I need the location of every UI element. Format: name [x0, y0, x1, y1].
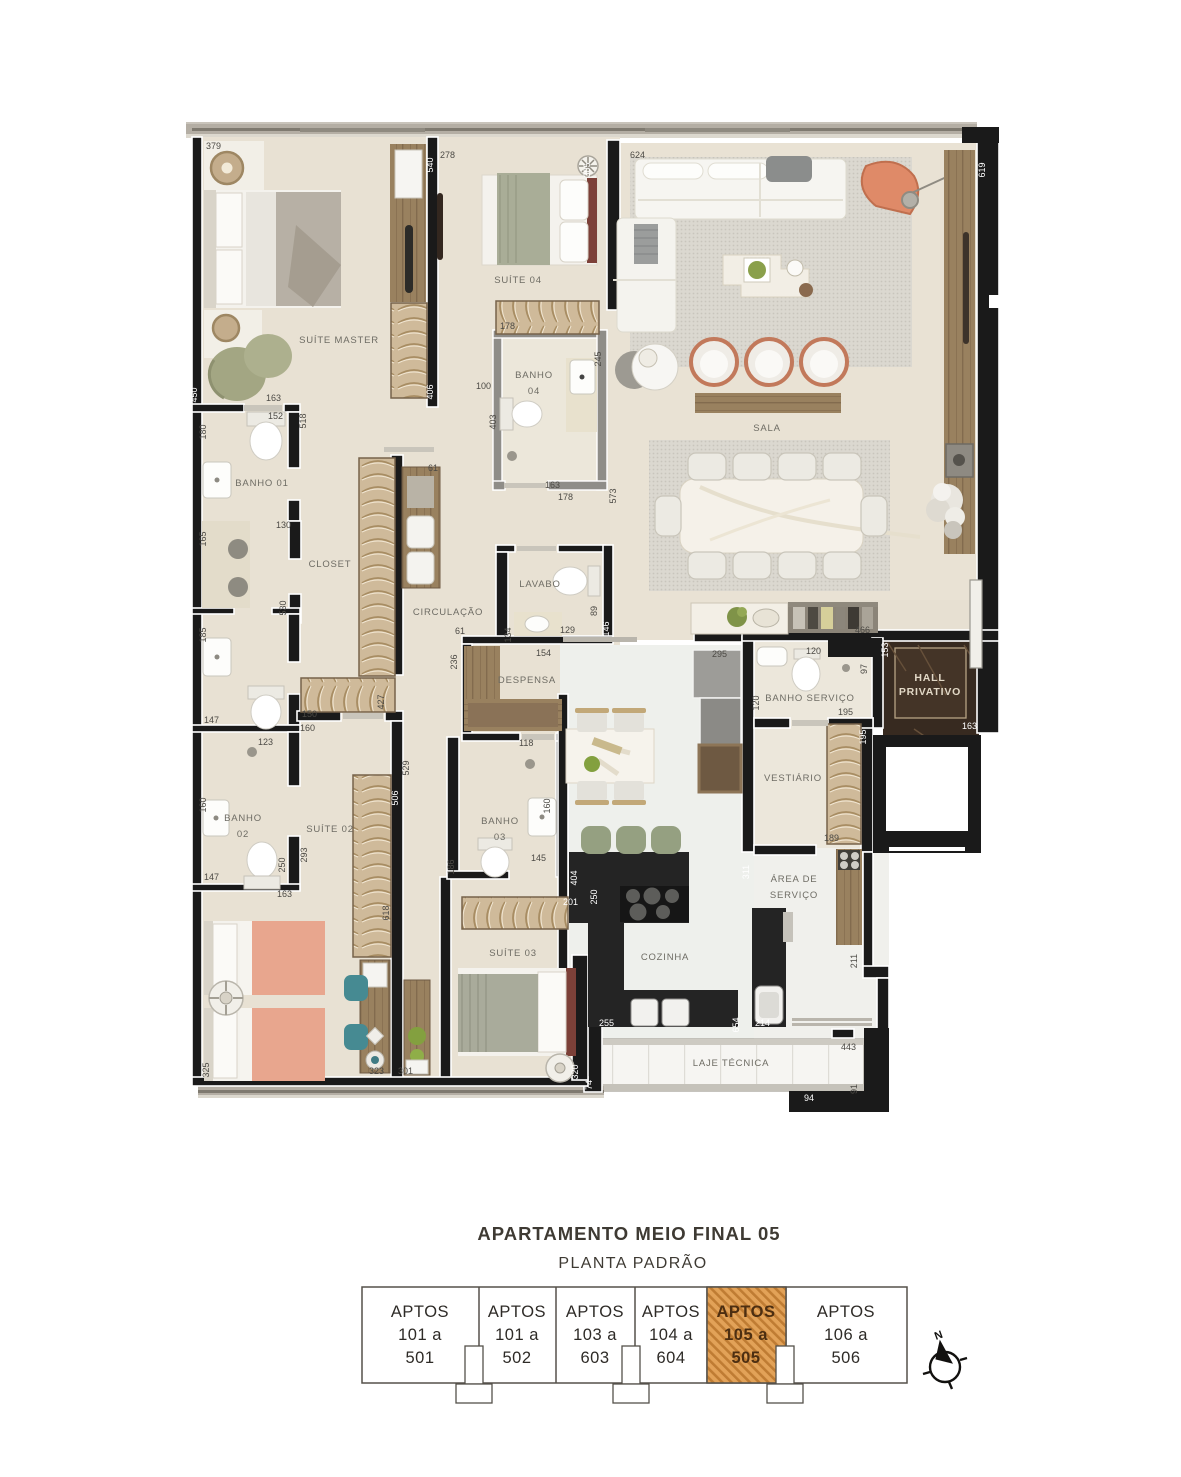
- svg-text:BANHO: BANHO: [481, 816, 519, 827]
- svg-text:404: 404: [569, 870, 579, 885]
- svg-text:406: 406: [425, 384, 435, 399]
- svg-text:SALA: SALA: [753, 423, 781, 434]
- svg-text:518: 518: [298, 413, 308, 428]
- svg-text:97: 97: [859, 664, 869, 674]
- svg-text:SUÍTE 04: SUÍTE 04: [494, 275, 542, 286]
- svg-text:195: 195: [858, 729, 868, 744]
- svg-text:ÁREA DE: ÁREA DE: [771, 874, 818, 885]
- svg-text:160: 160: [198, 797, 208, 812]
- svg-text:HALL: HALL: [914, 672, 945, 684]
- svg-text:186: 186: [446, 859, 456, 874]
- svg-text:61: 61: [428, 463, 438, 473]
- svg-text:160: 160: [542, 798, 552, 813]
- svg-text:325: 325: [201, 1062, 211, 1077]
- svg-text:505: 505: [731, 1349, 760, 1367]
- svg-text:105 a: 105 a: [724, 1326, 768, 1344]
- svg-text:APTOS: APTOS: [566, 1303, 624, 1321]
- svg-text:120: 120: [806, 646, 821, 656]
- svg-text:123: 123: [258, 737, 273, 747]
- svg-text:245: 245: [593, 351, 603, 366]
- svg-text:120: 120: [751, 695, 761, 710]
- svg-text:89: 89: [589, 606, 599, 616]
- svg-text:104 a: 104 a: [649, 1326, 693, 1344]
- svg-text:320: 320: [570, 1064, 580, 1079]
- svg-text:305: 305: [582, 162, 592, 177]
- svg-text:178: 178: [500, 321, 515, 331]
- svg-text:163: 163: [266, 393, 281, 403]
- svg-text:130: 130: [276, 520, 291, 530]
- svg-text:147: 147: [204, 872, 219, 882]
- svg-text:SUÍTE MASTER: SUÍTE MASTER: [299, 335, 379, 346]
- svg-text:201: 201: [563, 897, 578, 907]
- svg-text:CLOSET: CLOSET: [309, 559, 352, 570]
- svg-text:SERVIÇO: SERVIÇO: [770, 890, 818, 901]
- svg-text:654: 654: [731, 1017, 741, 1032]
- svg-text:530: 530: [278, 600, 288, 615]
- svg-text:103 a: 103 a: [573, 1326, 617, 1344]
- svg-text:VESTIÁRIO: VESTIÁRIO: [764, 773, 822, 784]
- svg-text:154: 154: [536, 648, 551, 658]
- svg-text:101 a: 101 a: [398, 1326, 442, 1344]
- svg-text:COZINHA: COZINHA: [641, 952, 689, 963]
- svg-text:04: 04: [528, 386, 540, 397]
- svg-text:214: 214: [755, 1018, 770, 1028]
- svg-text:506: 506: [390, 790, 400, 805]
- svg-text:178: 178: [558, 492, 573, 502]
- svg-text:153: 153: [880, 642, 890, 657]
- svg-text:466: 466: [855, 625, 870, 635]
- svg-text:604: 604: [656, 1349, 685, 1367]
- svg-text:152: 152: [268, 411, 283, 421]
- svg-text:61: 61: [455, 626, 465, 636]
- svg-text:379: 379: [206, 141, 221, 151]
- svg-text:618: 618: [381, 905, 391, 920]
- svg-text:APTOS: APTOS: [642, 1303, 700, 1321]
- svg-text:PLANTA PADRÃO: PLANTA PADRÃO: [558, 1252, 707, 1272]
- svg-text:501: 501: [405, 1349, 434, 1367]
- svg-text:118: 118: [519, 738, 533, 748]
- svg-text:APTOS: APTOS: [391, 1303, 449, 1321]
- svg-text:427: 427: [376, 694, 386, 709]
- svg-text:301: 301: [398, 1066, 413, 1076]
- svg-text:624: 624: [630, 150, 645, 160]
- svg-text:101 a: 101 a: [495, 1326, 539, 1344]
- svg-text:403: 403: [488, 414, 498, 429]
- svg-text:02: 02: [237, 829, 249, 840]
- svg-text:195: 195: [838, 707, 853, 717]
- svg-text:211: 211: [849, 954, 859, 968]
- svg-text:255: 255: [599, 1018, 614, 1028]
- svg-text:573: 573: [608, 488, 618, 503]
- svg-text:134: 134: [503, 627, 513, 642]
- svg-text:163: 163: [962, 721, 977, 731]
- svg-text:LAJE TÉCNICA: LAJE TÉCNICA: [693, 1058, 769, 1069]
- svg-text:295: 295: [712, 649, 727, 659]
- svg-text:165: 165: [198, 531, 208, 546]
- svg-text:94: 94: [804, 1093, 814, 1103]
- svg-text:189: 189: [824, 833, 839, 843]
- svg-text:SUÍTE 03: SUÍTE 03: [489, 948, 537, 959]
- svg-text:BANHO 01: BANHO 01: [235, 478, 288, 489]
- svg-text:619: 619: [977, 162, 987, 177]
- svg-text:278: 278: [440, 150, 455, 160]
- svg-text:450: 450: [189, 387, 199, 402]
- svg-text:APTOS: APTOS: [488, 1303, 546, 1321]
- svg-text:146: 146: [601, 621, 611, 636]
- svg-text:323: 323: [369, 1066, 384, 1076]
- svg-text:443: 443: [841, 1042, 856, 1052]
- svg-text:180: 180: [198, 424, 208, 439]
- svg-text:CIRCULAÇÃO: CIRCULAÇÃO: [413, 607, 483, 618]
- svg-text:147: 147: [204, 715, 219, 725]
- svg-text:APTOS: APTOS: [817, 1303, 875, 1321]
- svg-text:502: 502: [502, 1349, 531, 1367]
- svg-text:185: 185: [198, 627, 208, 642]
- svg-text:236: 236: [449, 654, 459, 669]
- svg-text:SUÍTE 02: SUÍTE 02: [306, 824, 354, 835]
- svg-text:91: 91: [849, 1084, 859, 1094]
- svg-text:603: 603: [580, 1349, 609, 1367]
- svg-text:150: 150: [302, 709, 317, 719]
- svg-text:145: 145: [531, 853, 546, 863]
- svg-text:03: 03: [494, 832, 506, 843]
- svg-text:PRIVATIVO: PRIVATIVO: [899, 686, 961, 698]
- svg-text:LAVABO: LAVABO: [519, 579, 560, 590]
- svg-text:311: 311: [741, 865, 751, 879]
- svg-text:BANHO: BANHO: [224, 813, 262, 824]
- svg-text:APTOS: APTOS: [716, 1303, 775, 1321]
- svg-text:250: 250: [277, 857, 287, 872]
- svg-text:250: 250: [589, 889, 599, 904]
- svg-text:293: 293: [299, 847, 309, 862]
- svg-text:163: 163: [545, 480, 560, 490]
- svg-text:506: 506: [831, 1349, 860, 1367]
- svg-text:BANHO: BANHO: [515, 370, 553, 381]
- svg-text:BANHO SERVIÇO: BANHO SERVIÇO: [765, 693, 854, 704]
- svg-text:106 a: 106 a: [824, 1326, 868, 1344]
- svg-text:APARTAMENTO MEIO FINAL 05: APARTAMENTO MEIO FINAL 05: [477, 1223, 780, 1244]
- svg-text:540: 540: [425, 157, 435, 172]
- svg-text:74: 74: [584, 1080, 594, 1090]
- svg-text:163: 163: [277, 889, 292, 899]
- svg-text:160: 160: [300, 723, 315, 733]
- svg-text:DESPENSA: DESPENSA: [498, 675, 556, 686]
- svg-text:129: 129: [560, 625, 575, 635]
- svg-text:529: 529: [401, 760, 411, 775]
- svg-text:100: 100: [476, 381, 491, 391]
